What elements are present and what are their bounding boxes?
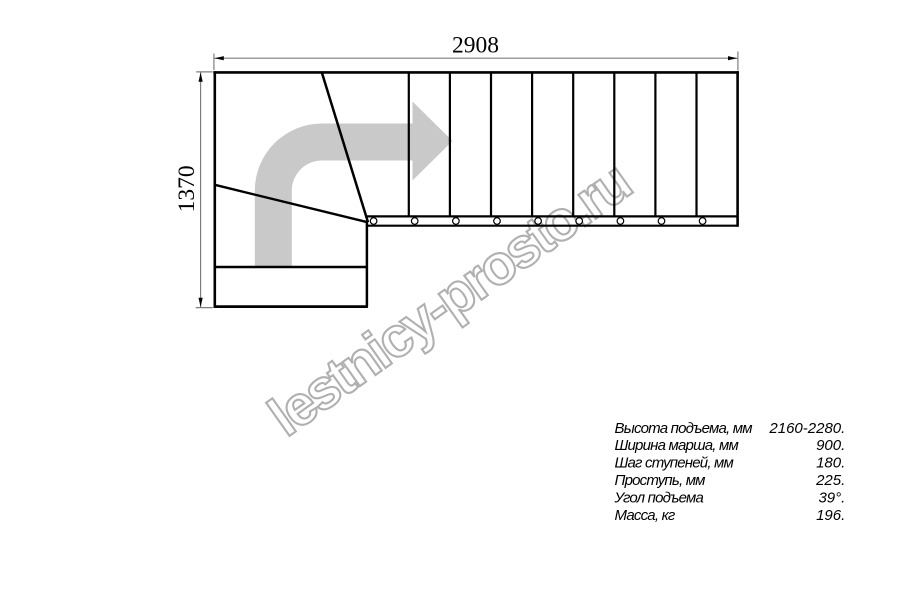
svg-text:39°.: 39°. <box>818 489 845 506</box>
svg-text:2908: 2908 <box>452 33 499 59</box>
svg-text:Проступь, мм: Проступь, мм <box>615 472 706 489</box>
svg-text:900.: 900. <box>816 437 845 454</box>
svg-text:Угол подъема: Угол подъема <box>614 489 704 506</box>
svg-text:196.: 196. <box>816 507 845 524</box>
svg-text:Высота подъема, мм: Высота подъема, мм <box>615 420 753 437</box>
svg-text:Шаг ступеней, мм: Шаг ступеней, мм <box>615 455 734 472</box>
svg-text:180.: 180. <box>816 455 845 472</box>
svg-text:225.: 225. <box>815 472 845 489</box>
svg-text:Ширина марша, мм: Ширина марша, мм <box>615 437 739 454</box>
svg-text:1370: 1370 <box>174 165 200 212</box>
svg-text:Масса, кг: Масса, кг <box>615 507 676 524</box>
svg-text:2160-2280.: 2160-2280. <box>768 420 845 437</box>
